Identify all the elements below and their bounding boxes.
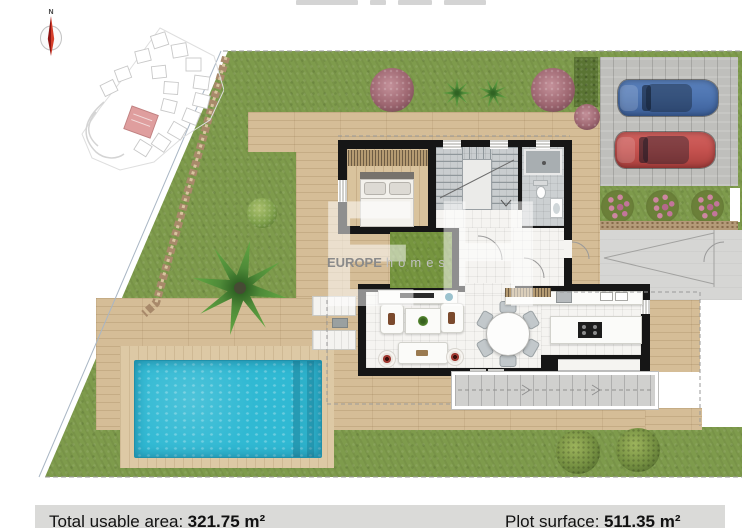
inset-units (100, 32, 210, 157)
terrace-arrows (522, 385, 600, 395)
total-area-label: Total usable area: (49, 512, 183, 528)
watermark: EUROPEhomes (327, 254, 450, 272)
door-arc-front (572, 242, 589, 259)
inset-road (86, 102, 124, 158)
plot-surface-label: Plot surface: (505, 512, 600, 528)
total-area-value: 321.75 m² (188, 512, 266, 528)
plot-surface: Plot surface: 511.35 m² (505, 512, 681, 528)
footer-bar: Total usable area: 321.75 m² Plot surfac… (35, 505, 725, 528)
north-label: N (48, 9, 53, 16)
court-lines (604, 230, 714, 287)
plot-surface-value: 511.35 m² (604, 512, 681, 528)
brand-name: EUROPE (327, 255, 382, 270)
inset-highlighted-unit (124, 106, 159, 138)
site-plan-inset (44, 24, 224, 174)
floor-plan-page: EH EUROPEhomes N (0, 0, 756, 528)
total-area: Total usable area: 321.75 m² (49, 512, 265, 528)
brand-suffix: homes (386, 255, 450, 270)
